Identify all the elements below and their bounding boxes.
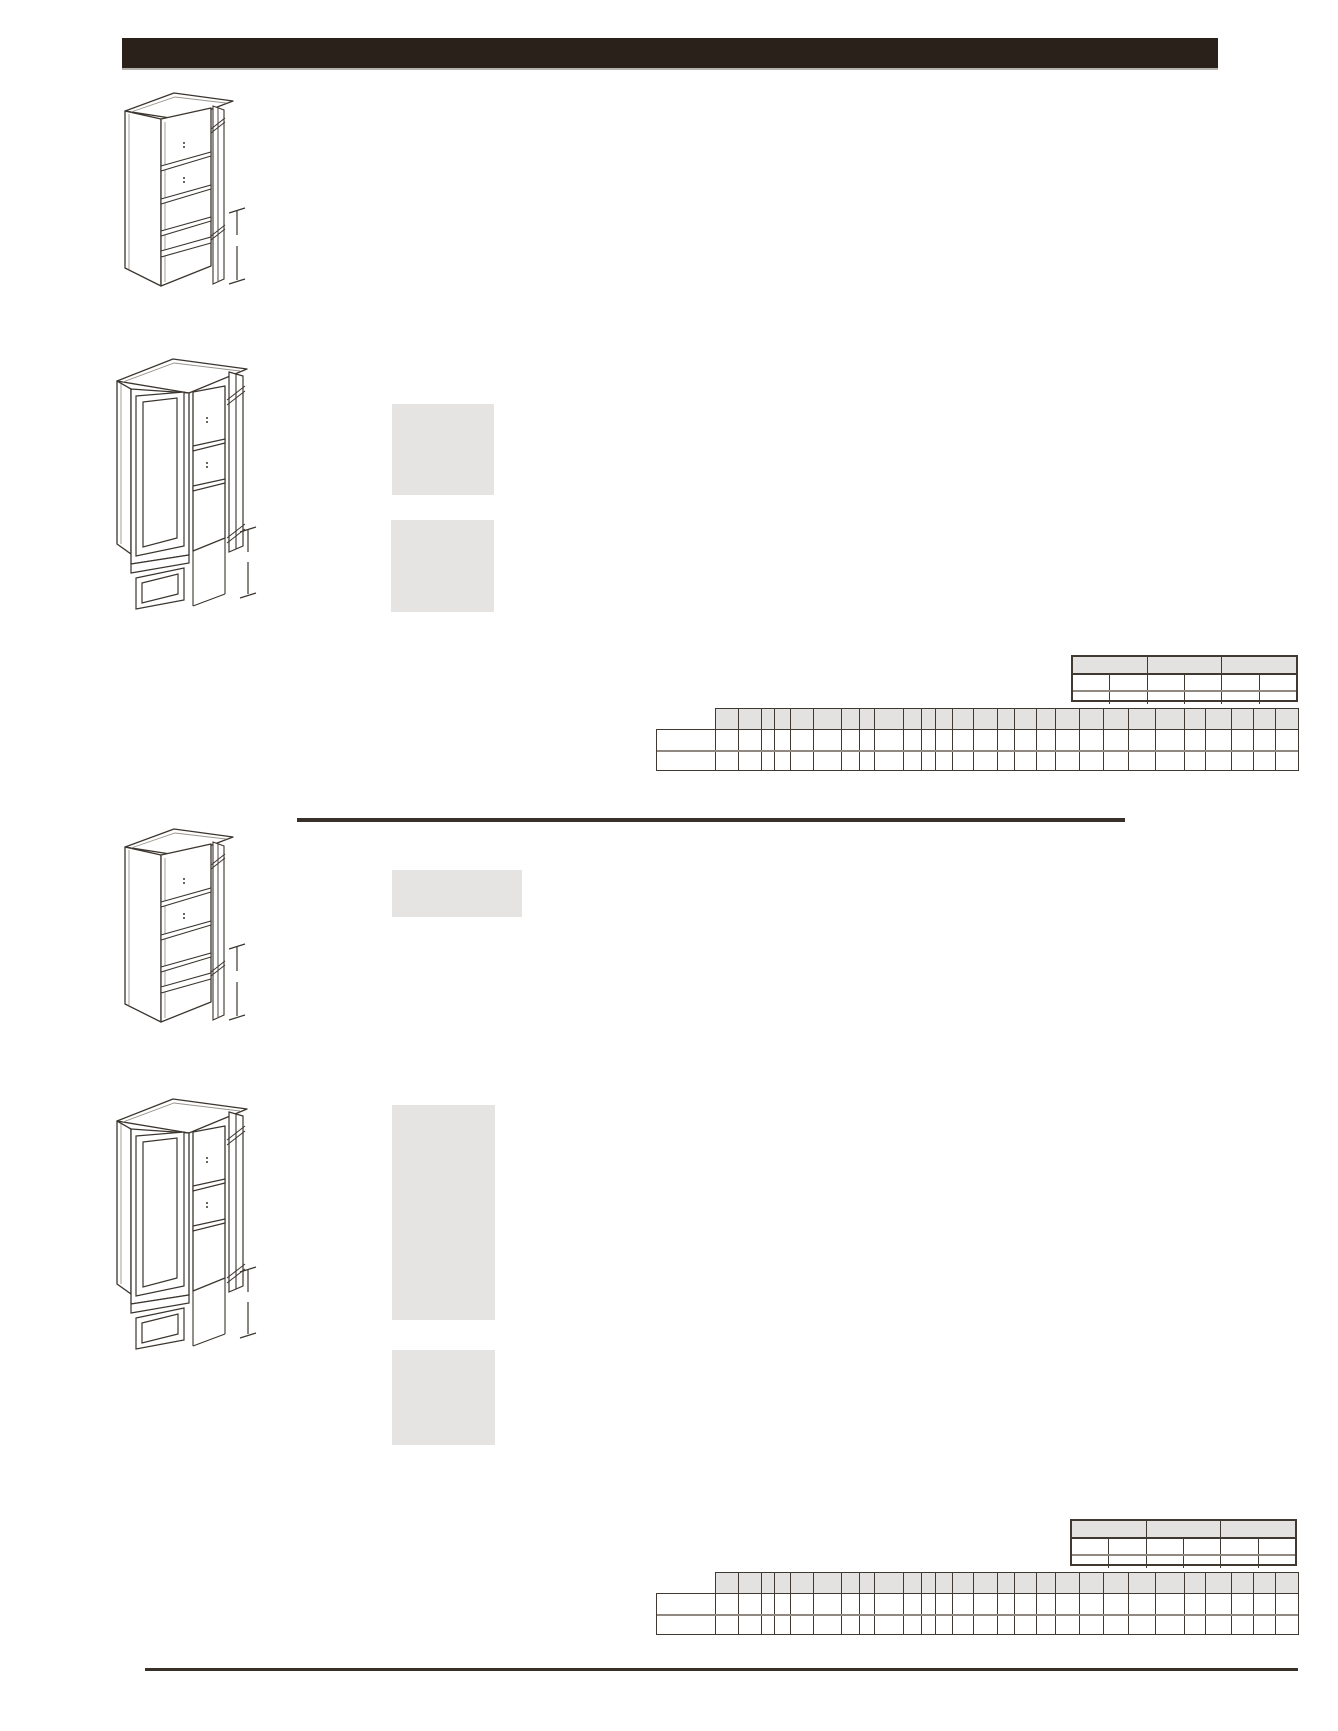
catalog-page: [0, 0, 1338, 1731]
footer-rule: [145, 1668, 1298, 1671]
spec-table-cell: [1148, 675, 1185, 690]
spec-table-cell: [762, 1616, 775, 1634]
spec-table-cell: [1276, 1616, 1298, 1634]
spec-table-header-cell: [1254, 1573, 1276, 1593]
spec-table-cell: [922, 1616, 936, 1634]
spec-table-cell: [1254, 1594, 1276, 1614]
spec-table-header-cell: [875, 709, 904, 729]
spec-table-header-cell: [1129, 709, 1156, 729]
spec-table-body-row: [657, 1614, 1298, 1634]
spec-table-cell: [904, 752, 922, 770]
spec-table-header-cell: [791, 1573, 814, 1593]
spec-table-header-cell: [1221, 1521, 1295, 1537]
spec-table-cell: [1104, 730, 1129, 750]
spec-table-cell: [1254, 752, 1276, 770]
spec-table-header-cell: [762, 709, 775, 729]
spec-table-cell: [791, 1594, 814, 1614]
spec-table-cell: [1129, 1616, 1156, 1634]
spec-table-cell: [1037, 730, 1056, 750]
spec-table-header-cell: [936, 1573, 953, 1593]
spec-table-header-cell: [1080, 709, 1104, 729]
spec-table-wide-1: [656, 708, 1299, 769]
spec-table-header-cell: [904, 709, 922, 729]
spec-table-cell: [1276, 730, 1298, 750]
spec-table-cell: [1080, 752, 1104, 770]
spec-table-cell: [1056, 1616, 1080, 1634]
spec-table-cell: [1185, 1616, 1206, 1634]
spec-table-header-cell: [1037, 1573, 1056, 1593]
spec-table-cell: [762, 730, 775, 750]
spec-table-cell: [716, 1616, 739, 1634]
spec-table-cell: [1222, 692, 1259, 704]
spec-table-row-cells: [716, 752, 1298, 770]
spec-table-header-cell: [1254, 709, 1276, 729]
spec-table-cell: [922, 752, 936, 770]
spec-table-header-cell: [860, 1573, 875, 1593]
spec-table-cell: [1156, 730, 1185, 750]
spec-table-header-cell: [922, 709, 936, 729]
spec-table-cell: [1185, 692, 1222, 704]
spec-table-cell: [1221, 1556, 1258, 1568]
spec-table-cell: [974, 730, 998, 750]
spec-table-header-cell: [936, 709, 953, 729]
spec-table-header-cell: [716, 709, 739, 729]
spec-table-cell: [1129, 1594, 1156, 1614]
spec-table-cell: [1254, 730, 1276, 750]
spec-table-cell: [1185, 1594, 1206, 1614]
spec-table-cell: [716, 752, 739, 770]
spec-table-cell: [875, 1616, 904, 1634]
spec-table-cell: [1185, 730, 1206, 750]
spec-table-body: [656, 1593, 1299, 1635]
spec-table-cell: [1056, 1594, 1080, 1614]
image-placeholder: [392, 870, 522, 917]
spec-table-cell: [1185, 752, 1206, 770]
spec-table-cell: [762, 752, 775, 770]
spec-table-cell: [1104, 752, 1129, 770]
spec-table-header-row: [715, 1572, 1299, 1593]
spec-table-cell: [1206, 730, 1232, 750]
spec-table-header-cell: [791, 709, 814, 729]
spec-table-header-cell: [739, 1573, 762, 1593]
spec-table-cell: [1147, 1539, 1184, 1554]
spec-table-header-cell: [1015, 709, 1037, 729]
spec-table-header-cell: [1232, 709, 1254, 729]
spec-table-cell: [775, 730, 791, 750]
spec-table-cell: [1072, 1556, 1109, 1568]
spec-table-body-row: [1073, 690, 1296, 704]
spec-table-cell: [775, 1594, 791, 1614]
spec-table-header-cell: [998, 1573, 1015, 1593]
spec-table-header-cell: [1232, 1573, 1254, 1593]
spec-table-cell: [1254, 1616, 1276, 1634]
spec-table-cell: [1276, 1594, 1298, 1614]
spec-table-cell: [1080, 1594, 1104, 1614]
spec-table-cell: [974, 752, 998, 770]
spec-table-cell: [875, 1594, 904, 1614]
spec-table-cell: [739, 1594, 762, 1614]
page-title-bar: [122, 38, 1218, 68]
spec-table-cell: [1184, 1539, 1221, 1554]
spec-table-cell: [860, 1594, 875, 1614]
spec-table-cell: [1110, 675, 1147, 690]
spec-table-header-cell: [1185, 709, 1206, 729]
spec-table-header-cell: [953, 709, 974, 729]
spec-table-cell: [1037, 1616, 1056, 1634]
spec-table-small-2: [1070, 1519, 1297, 1566]
spec-table-cell: [842, 752, 860, 770]
spec-table-cell: [1147, 1556, 1184, 1568]
spec-table-cell: [1206, 752, 1232, 770]
spec-table-header-cell: [922, 1573, 936, 1593]
spec-table-cell: [1156, 1616, 1185, 1634]
spec-table-header-cell: [1056, 709, 1080, 729]
spec-table-cell: [716, 1594, 739, 1614]
spec-table-header-cell: [1276, 1573, 1298, 1593]
spec-table-header-cell: [1148, 657, 1223, 673]
spec-table-cell: [998, 1616, 1015, 1634]
spec-table-header-cell: [1073, 657, 1148, 673]
spec-table-cell: [1184, 1556, 1221, 1568]
spec-table-cell: [974, 1616, 998, 1634]
spec-table-cell: [775, 752, 791, 770]
spec-table-cell: [1109, 1539, 1146, 1554]
spec-table-cell: [716, 730, 739, 750]
spec-table-header-cell: [1072, 1521, 1147, 1537]
spec-table-cell: [1222, 675, 1259, 690]
spec-table-cell: [875, 730, 904, 750]
spec-table-header-cell: [875, 1573, 904, 1593]
spec-table-cell: [1104, 1616, 1129, 1634]
spec-table-header-cell: [814, 1573, 842, 1593]
spec-table-header-cell: [739, 709, 762, 729]
spec-table-cell: [1129, 752, 1156, 770]
cabinet-drawing-1: [118, 86, 248, 296]
spec-table-cell: [936, 730, 953, 750]
spec-table-cell: [1056, 752, 1080, 770]
spec-table-header-cell: [1206, 1573, 1232, 1593]
spec-table-cell: [1129, 730, 1156, 750]
spec-table-header-row: [715, 708, 1299, 729]
spec-table-cell: [1037, 752, 1056, 770]
spec-table-cell: [1221, 1539, 1258, 1554]
spec-table-cell: [1110, 692, 1147, 704]
spec-table-header-cell: [1276, 709, 1298, 729]
spec-table-cell: [791, 730, 814, 750]
spec-table-body-row: [1072, 1539, 1295, 1554]
image-placeholder: [392, 404, 494, 495]
spec-table-cell: [860, 752, 875, 770]
cabinet-drawing-3: [118, 822, 248, 1032]
spec-table-cell: [1260, 675, 1296, 690]
spec-table-cell: [904, 1594, 922, 1614]
spec-table-header-cell: [1056, 1573, 1080, 1593]
spec-table-row-cells: [716, 1616, 1298, 1634]
spec-table-cell: [1015, 730, 1037, 750]
spec-table-cell: [762, 1594, 775, 1614]
spec-table-cell: [1073, 675, 1110, 690]
spec-table-cell: [998, 752, 1015, 770]
spec-table-row-stub: [657, 730, 716, 750]
spec-table-cell: [1185, 675, 1222, 690]
spec-table-cell: [860, 730, 875, 750]
spec-table-cell: [936, 752, 953, 770]
spec-table-cell: [1206, 1616, 1232, 1634]
spec-table-cell: [842, 1616, 860, 1634]
spec-table-cell: [1015, 1594, 1037, 1614]
spec-table-cell: [1015, 752, 1037, 770]
spec-table-cell: [1072, 1539, 1109, 1554]
spec-table-body-row: [657, 1594, 1298, 1614]
spec-table-cell: [1056, 730, 1080, 750]
spec-table-cell: [998, 1594, 1015, 1614]
spec-table-header-cell: [842, 1573, 860, 1593]
spec-table-cell: [1037, 1594, 1056, 1614]
cabinet-drawing-2: [112, 348, 257, 613]
spec-table-row-cells: [716, 730, 1298, 750]
spec-table-cell: [814, 730, 842, 750]
spec-table-cell: [1080, 1616, 1104, 1634]
spec-table-cell: [936, 1594, 953, 1614]
spec-table-cell: [860, 1616, 875, 1634]
spec-table-cell: [1260, 692, 1296, 704]
spec-table-header-cell: [1185, 1573, 1206, 1593]
spec-table-header-cell: [716, 1573, 739, 1593]
spec-table-header-cell: [998, 709, 1015, 729]
spec-table-small-1: [1071, 655, 1298, 702]
spec-table-body-row: [657, 730, 1298, 750]
spec-table-cell: [904, 1616, 922, 1634]
spec-table-header-row: [1073, 657, 1296, 675]
cabinet-drawing-4: [112, 1088, 257, 1353]
spec-table-cell: [842, 1594, 860, 1614]
spec-table-cell: [1232, 1616, 1254, 1634]
image-placeholder: [392, 1105, 495, 1320]
spec-table-header-cell: [1129, 1573, 1156, 1593]
spec-table-cell: [814, 1594, 842, 1614]
spec-table-header-cell: [775, 709, 791, 729]
spec-table-cell: [791, 752, 814, 770]
spec-table-header-cell: [1222, 657, 1296, 673]
spec-table-header-cell: [1080, 1573, 1104, 1593]
spec-table-cell: [1073, 692, 1110, 704]
spec-table-row-cells: [716, 1594, 1298, 1614]
spec-table-cell: [739, 1616, 762, 1634]
spec-table-cell: [922, 730, 936, 750]
spec-table-header-cell: [814, 709, 842, 729]
spec-table-cell: [1232, 752, 1254, 770]
spec-table-cell: [814, 1616, 842, 1634]
spec-table-cell: [1080, 730, 1104, 750]
spec-table-cell: [936, 1616, 953, 1634]
spec-table-header-cell: [1104, 1573, 1129, 1593]
spec-table-wide-2: [656, 1572, 1299, 1633]
spec-table-header-row: [1072, 1521, 1295, 1539]
spec-table-header-cell: [974, 709, 998, 729]
spec-table-body-row: [1072, 1554, 1295, 1568]
spec-table-cell: [791, 1616, 814, 1634]
spec-table-body-row: [1073, 675, 1296, 690]
spec-table-cell: [953, 730, 974, 750]
image-placeholder: [391, 520, 494, 612]
spec-table-header-cell: [762, 1573, 775, 1593]
spec-table-cell: [953, 1616, 974, 1634]
spec-table-header-cell: [775, 1573, 791, 1593]
spec-table-body-row: [657, 750, 1298, 770]
spec-table-cell: [1259, 1539, 1295, 1554]
spec-table-header-cell: [1156, 709, 1185, 729]
spec-table-row-stub: [657, 1616, 716, 1634]
spec-table-cell: [1259, 1556, 1295, 1568]
spec-table-cell: [739, 730, 762, 750]
spec-table-header-cell: [904, 1573, 922, 1593]
spec-table-cell: [998, 730, 1015, 750]
spec-table-cell: [739, 752, 762, 770]
spec-table-cell: [922, 1594, 936, 1614]
spec-table-row-stub: [657, 752, 716, 770]
image-placeholder: [392, 1350, 495, 1445]
spec-table-cell: [1104, 1594, 1129, 1614]
spec-table-cell: [1109, 1556, 1146, 1568]
spec-table-header-cell: [860, 709, 875, 729]
spec-table-cell: [1232, 1594, 1254, 1614]
spec-table-cell: [842, 730, 860, 750]
spec-table-header-cell: [974, 1573, 998, 1593]
spec-table-cell: [1015, 1616, 1037, 1634]
spec-table-header-cell: [1104, 709, 1129, 729]
spec-table-row-stub: [657, 1594, 716, 1614]
spec-table-body: [656, 729, 1299, 771]
spec-table-header-cell: [953, 1573, 974, 1593]
spec-table-header-cell: [1206, 709, 1232, 729]
spec-table-header-cell: [1147, 1521, 1222, 1537]
spec-table-cell: [775, 1616, 791, 1634]
spec-table-cell: [1206, 1594, 1232, 1614]
spec-table-header-cell: [1015, 1573, 1037, 1593]
spec-table-cell: [904, 730, 922, 750]
spec-table-cell: [1156, 1594, 1185, 1614]
spec-table-cell: [953, 752, 974, 770]
spec-table-cell: [814, 752, 842, 770]
spec-table-cell: [1156, 752, 1185, 770]
spec-table-cell: [1232, 730, 1254, 750]
spec-table-cell: [1276, 752, 1298, 770]
spec-table-header-cell: [1037, 709, 1056, 729]
spec-table-header-cell: [1156, 1573, 1185, 1593]
section-divider-rule: [297, 818, 1125, 822]
spec-table-cell: [875, 752, 904, 770]
spec-table-header-cell: [842, 709, 860, 729]
spec-table-cell: [953, 1594, 974, 1614]
spec-table-cell: [974, 1594, 998, 1614]
spec-table-cell: [1148, 692, 1185, 704]
